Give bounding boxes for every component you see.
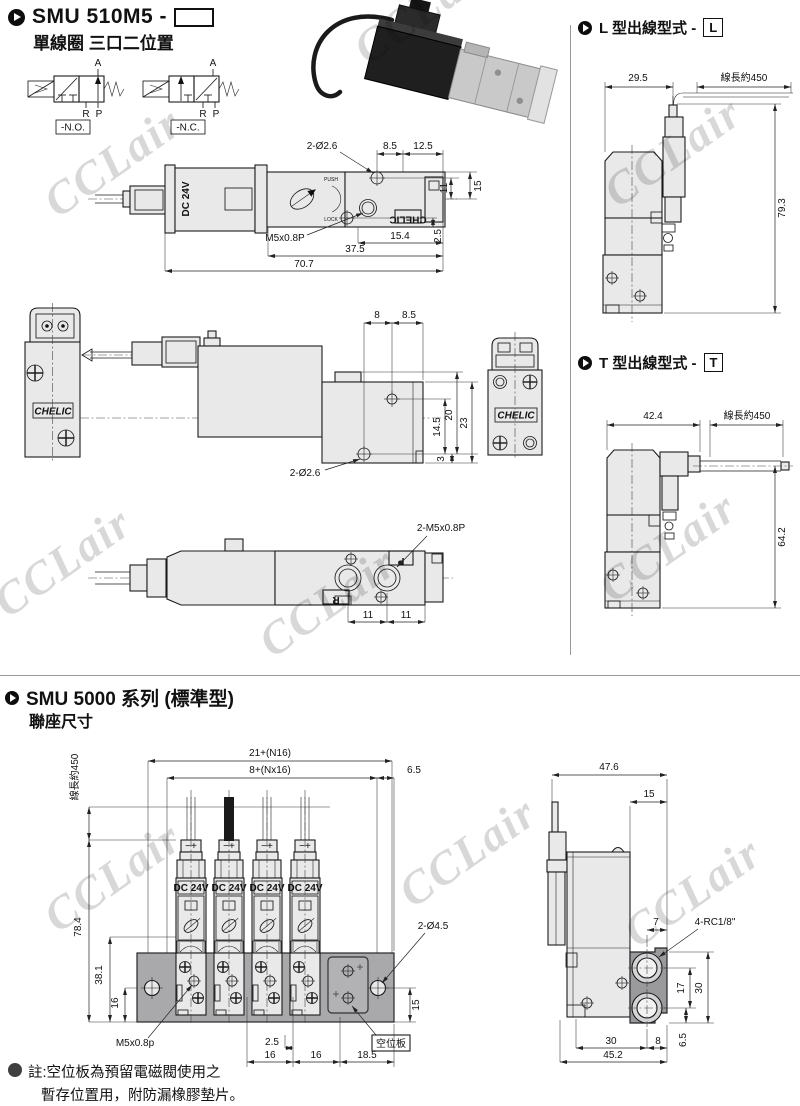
drawing-manifold-end-view: 47.6 15 7 4-RC1/8" 17 30 6.5 30 8 45.2 [540, 755, 800, 1070]
front-view-left: CHELIC [25, 303, 80, 463]
dim-label: 6.5 [407, 765, 421, 776]
dim-label: 15 [473, 180, 484, 192]
dim-label: 17 [676, 982, 687, 994]
model-number: SMU 510M5 - [32, 5, 167, 29]
l-type-title: L 型出線型式 - [599, 17, 696, 38]
section-divider [0, 675, 800, 676]
dim-label: 2.5 [433, 229, 444, 243]
black-cable [224, 797, 234, 841]
port-label: A [95, 58, 102, 69]
port-r-mark: R [332, 594, 340, 605]
brand-logo-small: CHELIC [389, 214, 426, 225]
thread-label: 2-M5x0.8P [417, 523, 466, 534]
nc-label: -N.C. [176, 123, 199, 134]
drawing-top-view: DC 24V PUSH LOCK CHELIC 8.5 12.5 2-Ø2.6 … [85, 135, 485, 290]
dim-label: 6.5 [678, 1033, 689, 1047]
dim-label: 7 [653, 917, 659, 928]
cable-length-label: 線長約450 [721, 71, 768, 84]
note-bullet-icon [8, 1063, 22, 1077]
dim-label: 11 [363, 610, 374, 621]
side-view-center: 8 8.5 14.5 20 23 3 2-Ø2.6 [80, 310, 478, 479]
smu5000-subtitle: 聯座尺寸 [29, 708, 93, 732]
dim-label: 30 [694, 982, 705, 994]
note-line-1: 註:空位板為預留電磁閥使用之 [28, 1061, 221, 1082]
dim-label: 3 [436, 456, 447, 462]
port-label: P [96, 109, 103, 120]
catalog-page: { "header": {"model": "SMU 510M5 -", "su… [0, 0, 800, 1106]
thread-label: M5x0.8p [116, 1038, 155, 1049]
dim-label: 8 [655, 1036, 661, 1047]
push-label: PUSH [324, 177, 338, 183]
dim-label: 2.5 [265, 1037, 279, 1048]
dim-label: 8.5 [383, 141, 397, 152]
play-bullet-icon [5, 691, 19, 705]
coil-voltage-label: DC 24V [181, 181, 192, 216]
valve-unit [173, 790, 208, 1023]
no-label: -N.O. [61, 123, 85, 134]
dim-label: 15.4 [390, 231, 410, 242]
cable-length-label: 線長約450 [724, 409, 771, 422]
symbol-normally-closed: A R P -N.C. [143, 58, 239, 134]
smu5000-title: SMU 5000 系列 (標準型) [26, 684, 234, 711]
dim-label: 18.5 [357, 1050, 377, 1061]
dim-label: 21+(N16) [249, 748, 291, 759]
dim-label: 70.7 [294, 259, 314, 270]
page-title: SMU 510M5 - [8, 5, 214, 29]
blank-plate-label: 空位板 [376, 1037, 406, 1050]
drawing-t-type: 42.4 線長約450 64.2 [575, 395, 800, 645]
port-thread-label: 4-RC1/8" [695, 917, 736, 928]
dim-label: 20 [444, 409, 455, 421]
dim-label: 8+(Nx16) [249, 765, 290, 776]
dim-label: 37.5 [345, 244, 365, 255]
page-subtitle: 單線圈 三口二位置 [33, 29, 174, 54]
t-type-code-box: T [704, 353, 724, 372]
dim-label: 2-Ø2.6 [307, 141, 338, 152]
dim-label: 8.5 [402, 310, 416, 321]
brand-logo: CHELIC [34, 407, 72, 418]
note-line-2: 暫存位置用，附防漏橡膠墊片。 [41, 1084, 244, 1105]
dim-label: 42.4 [643, 411, 663, 422]
drawing-front-and-side-views: CHELIC 8 8.5 14.5 20 23 3 2-Ø2.6 [20, 300, 565, 485]
brand-logo: CHELIC [497, 411, 535, 422]
type-code-empty-box [174, 8, 214, 27]
product-photo [300, 4, 560, 130]
l-type-code-box: L [703, 18, 723, 37]
dim-label: 38.1 [94, 965, 105, 985]
column-divider [570, 25, 571, 655]
dim-label: 30 [605, 1036, 617, 1047]
hole-label: 2-Ø4.5 [418, 921, 449, 932]
dim-label: 14.5 [432, 417, 443, 437]
valve-unit [287, 790, 322, 1023]
drawing-manifold-front: −+ DC 24V 21+(N16) 8+(Nx16) 6.5 線長約450 [45, 735, 465, 1070]
dim-label: 16 [310, 1050, 322, 1061]
dim-label: 12.5 [413, 141, 433, 152]
t-type-title: T 型出線型式 - [599, 352, 697, 373]
lock-label: LOCK [324, 217, 338, 223]
dim-label: 15 [643, 789, 655, 800]
dim-label: 15 [411, 999, 422, 1011]
valve-unit [249, 790, 284, 1023]
front-view-right: CHELIC [488, 332, 542, 460]
port-label: R [199, 109, 206, 120]
dim-label: 47.6 [599, 762, 619, 773]
port-label: P [213, 109, 220, 120]
dim-label: 29.5 [628, 73, 648, 84]
valve-symbols-diagram: A R P -N.O. A R P -N.C. [10, 55, 270, 137]
symbol-normally-open: A R P -N.O. [28, 58, 124, 134]
l-type-header: L 型出線型式 - L [578, 17, 723, 38]
thread-label: M5x0.8P [265, 233, 305, 244]
cable-length-label: 線長約450 [68, 753, 81, 800]
dim-label: 45.2 [603, 1050, 623, 1061]
drawing-l-type: 29.5 線長約450 79.3 [575, 60, 800, 350]
dim-label: 11 [401, 610, 412, 621]
dim-label: 11 [439, 182, 450, 193]
port-label: A [210, 58, 217, 69]
dim-label: 64.2 [777, 527, 788, 547]
dim-label: 16 [110, 997, 121, 1009]
play-bullet-icon [8, 9, 25, 26]
dim-label: 8 [374, 310, 380, 321]
play-bullet-icon [578, 356, 592, 370]
dim-label: 23 [459, 417, 470, 429]
blank-station-plate [328, 957, 368, 1013]
hole-label: 2-Ø2.6 [290, 468, 321, 479]
smu5000-header: SMU 5000 系列 (標準型) [5, 684, 234, 711]
dim-label: 16 [264, 1050, 276, 1061]
play-bullet-icon [578, 21, 592, 35]
t-type-header: T 型出線型式 - T [578, 352, 723, 373]
dim-label: 78.4 [73, 917, 84, 937]
port-label: R [82, 109, 89, 120]
drawing-bottom-view: R P 2-M5x0.8P 11 11 [85, 495, 490, 650]
dim-label: 79.3 [777, 198, 788, 218]
